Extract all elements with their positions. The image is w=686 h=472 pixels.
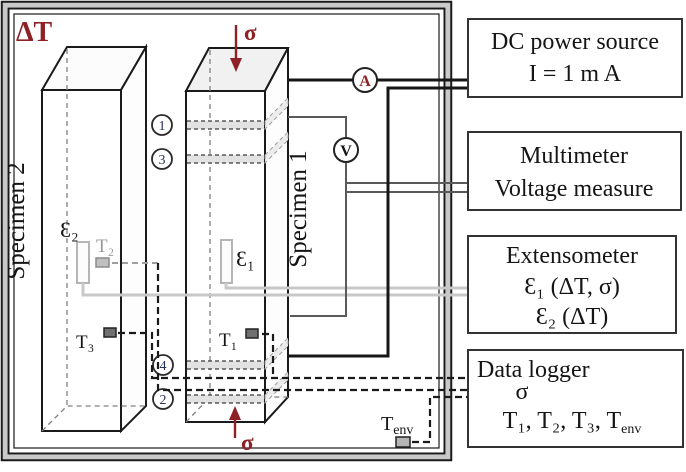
- thermocouple-t3-sensor: [104, 328, 116, 337]
- data-logger-sigma: σ: [516, 379, 529, 405]
- specimen1-label: Specimen 1: [285, 150, 312, 267]
- probe-point-2: 2: [153, 389, 173, 409]
- multimeter-subtitle: Voltage measure: [495, 176, 654, 202]
- diagram-canvas: ΔT Specimen 2 Ɛ₂ T₂ T₃: [0, 0, 686, 467]
- probe-band-2-strip: [187, 395, 264, 403]
- thermocouple-t3-label: T₃: [76, 332, 94, 353]
- ammeter-letter: A: [359, 73, 371, 90]
- data-logger-title: Data logger: [477, 357, 590, 383]
- stress-symbol-bottom: σ: [241, 430, 254, 455]
- voltmeter-letter: V: [340, 143, 352, 160]
- probe-point-1-number: 1: [159, 119, 166, 134]
- ammeter: A: [353, 68, 377, 92]
- extensometer-title: Extensometer: [506, 243, 638, 269]
- extensometer-eps1-line: Ɛ₁ (ΔT, σ): [524, 274, 620, 300]
- data-logger-temps: T₁, T₂, T₃, Tenv: [503, 408, 642, 437]
- probe-band-3-strip: [187, 155, 264, 163]
- probe-point-3: 3: [152, 149, 172, 169]
- voltmeter: V: [334, 138, 358, 162]
- extensometer-box: Extensometer Ɛ₁ (ΔT, σ) Ɛ₂ (ΔT): [468, 236, 676, 333]
- dc-power-source-box: DC power source I = 1 m A: [468, 19, 682, 97]
- experimental-setup-diagram: ΔT Specimen 2 Ɛ₂ T₂ T₃: [0, 0, 686, 467]
- probe-point-4: 4: [153, 355, 173, 375]
- probe-point-1: 1: [152, 115, 172, 135]
- specimen2-label: Specimen 2: [3, 162, 30, 279]
- extensometer-eps2-line: Ɛ₂ (ΔT): [536, 304, 608, 330]
- thermocouple-t1-sensor: [246, 329, 258, 338]
- multimeter-title: Multimeter: [520, 143, 628, 169]
- dc-power-source-title: DC power source: [491, 29, 659, 55]
- extensometer1-label: Ɛ₁: [236, 246, 255, 271]
- probe-band-4-strip: [187, 361, 264, 369]
- chamber-delta-t-label: ΔT: [16, 17, 53, 48]
- probe-point-2-number: 2: [160, 393, 167, 408]
- thermocouple-t2-sensor: [96, 258, 109, 267]
- extensometer1-gauge: [221, 240, 232, 283]
- thermocouple-t1-label: T₁: [219, 330, 237, 351]
- thermocouple-t2-label: T₂: [96, 236, 114, 257]
- multimeter-box: Multimeter Voltage measure: [468, 132, 681, 210]
- extensometer2-label: Ɛ₂: [60, 217, 79, 242]
- probe-point-3-number: 3: [159, 153, 166, 168]
- specimen2-side-face: [121, 47, 146, 431]
- probe-band-1-strip: [187, 121, 264, 129]
- t-env-sensor: [396, 437, 410, 447]
- stress-symbol-top: σ: [244, 20, 257, 45]
- probe-point-4-number: 4: [160, 359, 167, 374]
- data-logger-box: Data logger σ T₁, T₂, T₃, Tenv: [468, 350, 683, 447]
- dc-power-source-current: I = 1 m A: [529, 61, 622, 87]
- extensometer2-gauge: [77, 242, 89, 283]
